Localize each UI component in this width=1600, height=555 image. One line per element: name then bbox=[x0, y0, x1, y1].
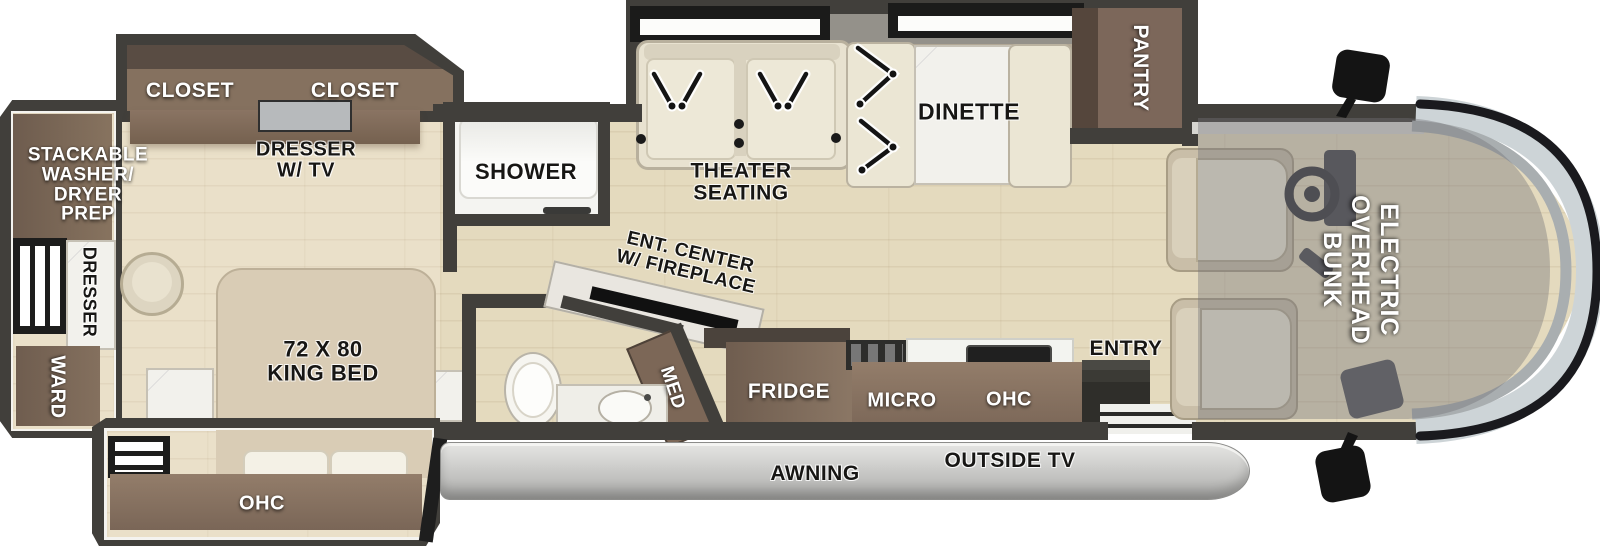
label-king-bed: 72 X 80 KING BED bbox=[267, 337, 379, 384]
wall-bath-left bbox=[462, 294, 476, 434]
wall-top-a bbox=[433, 104, 642, 122]
floorplan-canvas: CLOSET CLOSET DRESSER W/ TV STACKABLE WA… bbox=[0, 0, 1600, 555]
bed-slideout-window-panes bbox=[115, 442, 163, 472]
label-closet-left: CLOSET bbox=[146, 80, 234, 102]
bedroom-chair-seat bbox=[132, 262, 172, 302]
label-outside-tv: OUTSIDE TV bbox=[944, 450, 1075, 472]
toilet-seat bbox=[512, 362, 554, 418]
label-washer-prep: STACKABLE WASHER/ DRYER PREP bbox=[28, 146, 148, 225]
label-ward: WARD bbox=[46, 355, 67, 418]
label-closet-right: CLOSET bbox=[311, 80, 399, 102]
bedroom-side-window-panes bbox=[20, 246, 60, 326]
mirror-top-arm bbox=[1336, 96, 1356, 118]
label-dinette: DINETTE bbox=[918, 100, 1020, 125]
bath-faucet bbox=[644, 394, 651, 401]
label-awning: AWNING bbox=[770, 463, 859, 485]
label-entry: ENTRY bbox=[1090, 338, 1163, 360]
label-pantry: PANTRY bbox=[1129, 25, 1151, 112]
label-shower: SHOWER bbox=[475, 160, 577, 184]
wall-bottom-left bbox=[436, 422, 1108, 440]
label-theater: THEATER SEATING bbox=[690, 161, 791, 206]
label-ohc-kitchen: OHC bbox=[986, 389, 1032, 410]
label-side-dresser: DRESSER bbox=[79, 247, 98, 338]
upholstery-stitch-marks bbox=[600, 0, 1120, 210]
label-ohc-bedroom: OHC bbox=[239, 493, 285, 514]
shower-door-handle bbox=[543, 207, 591, 214]
mirror-top bbox=[1331, 48, 1392, 104]
mirror-bottom bbox=[1313, 444, 1372, 505]
label-dresser-tv: DRESSER W/ TV bbox=[256, 140, 356, 183]
label-micro: MICRO bbox=[867, 390, 936, 411]
shower-pan bbox=[459, 117, 598, 199]
label-fridge: FRIDGE bbox=[748, 381, 830, 403]
tv-on-dresser bbox=[258, 100, 352, 132]
wall-shower-stub bbox=[443, 220, 457, 272]
label-overhead-bunk: ELECTRIC OVERHEAD BUNK bbox=[1317, 195, 1403, 345]
